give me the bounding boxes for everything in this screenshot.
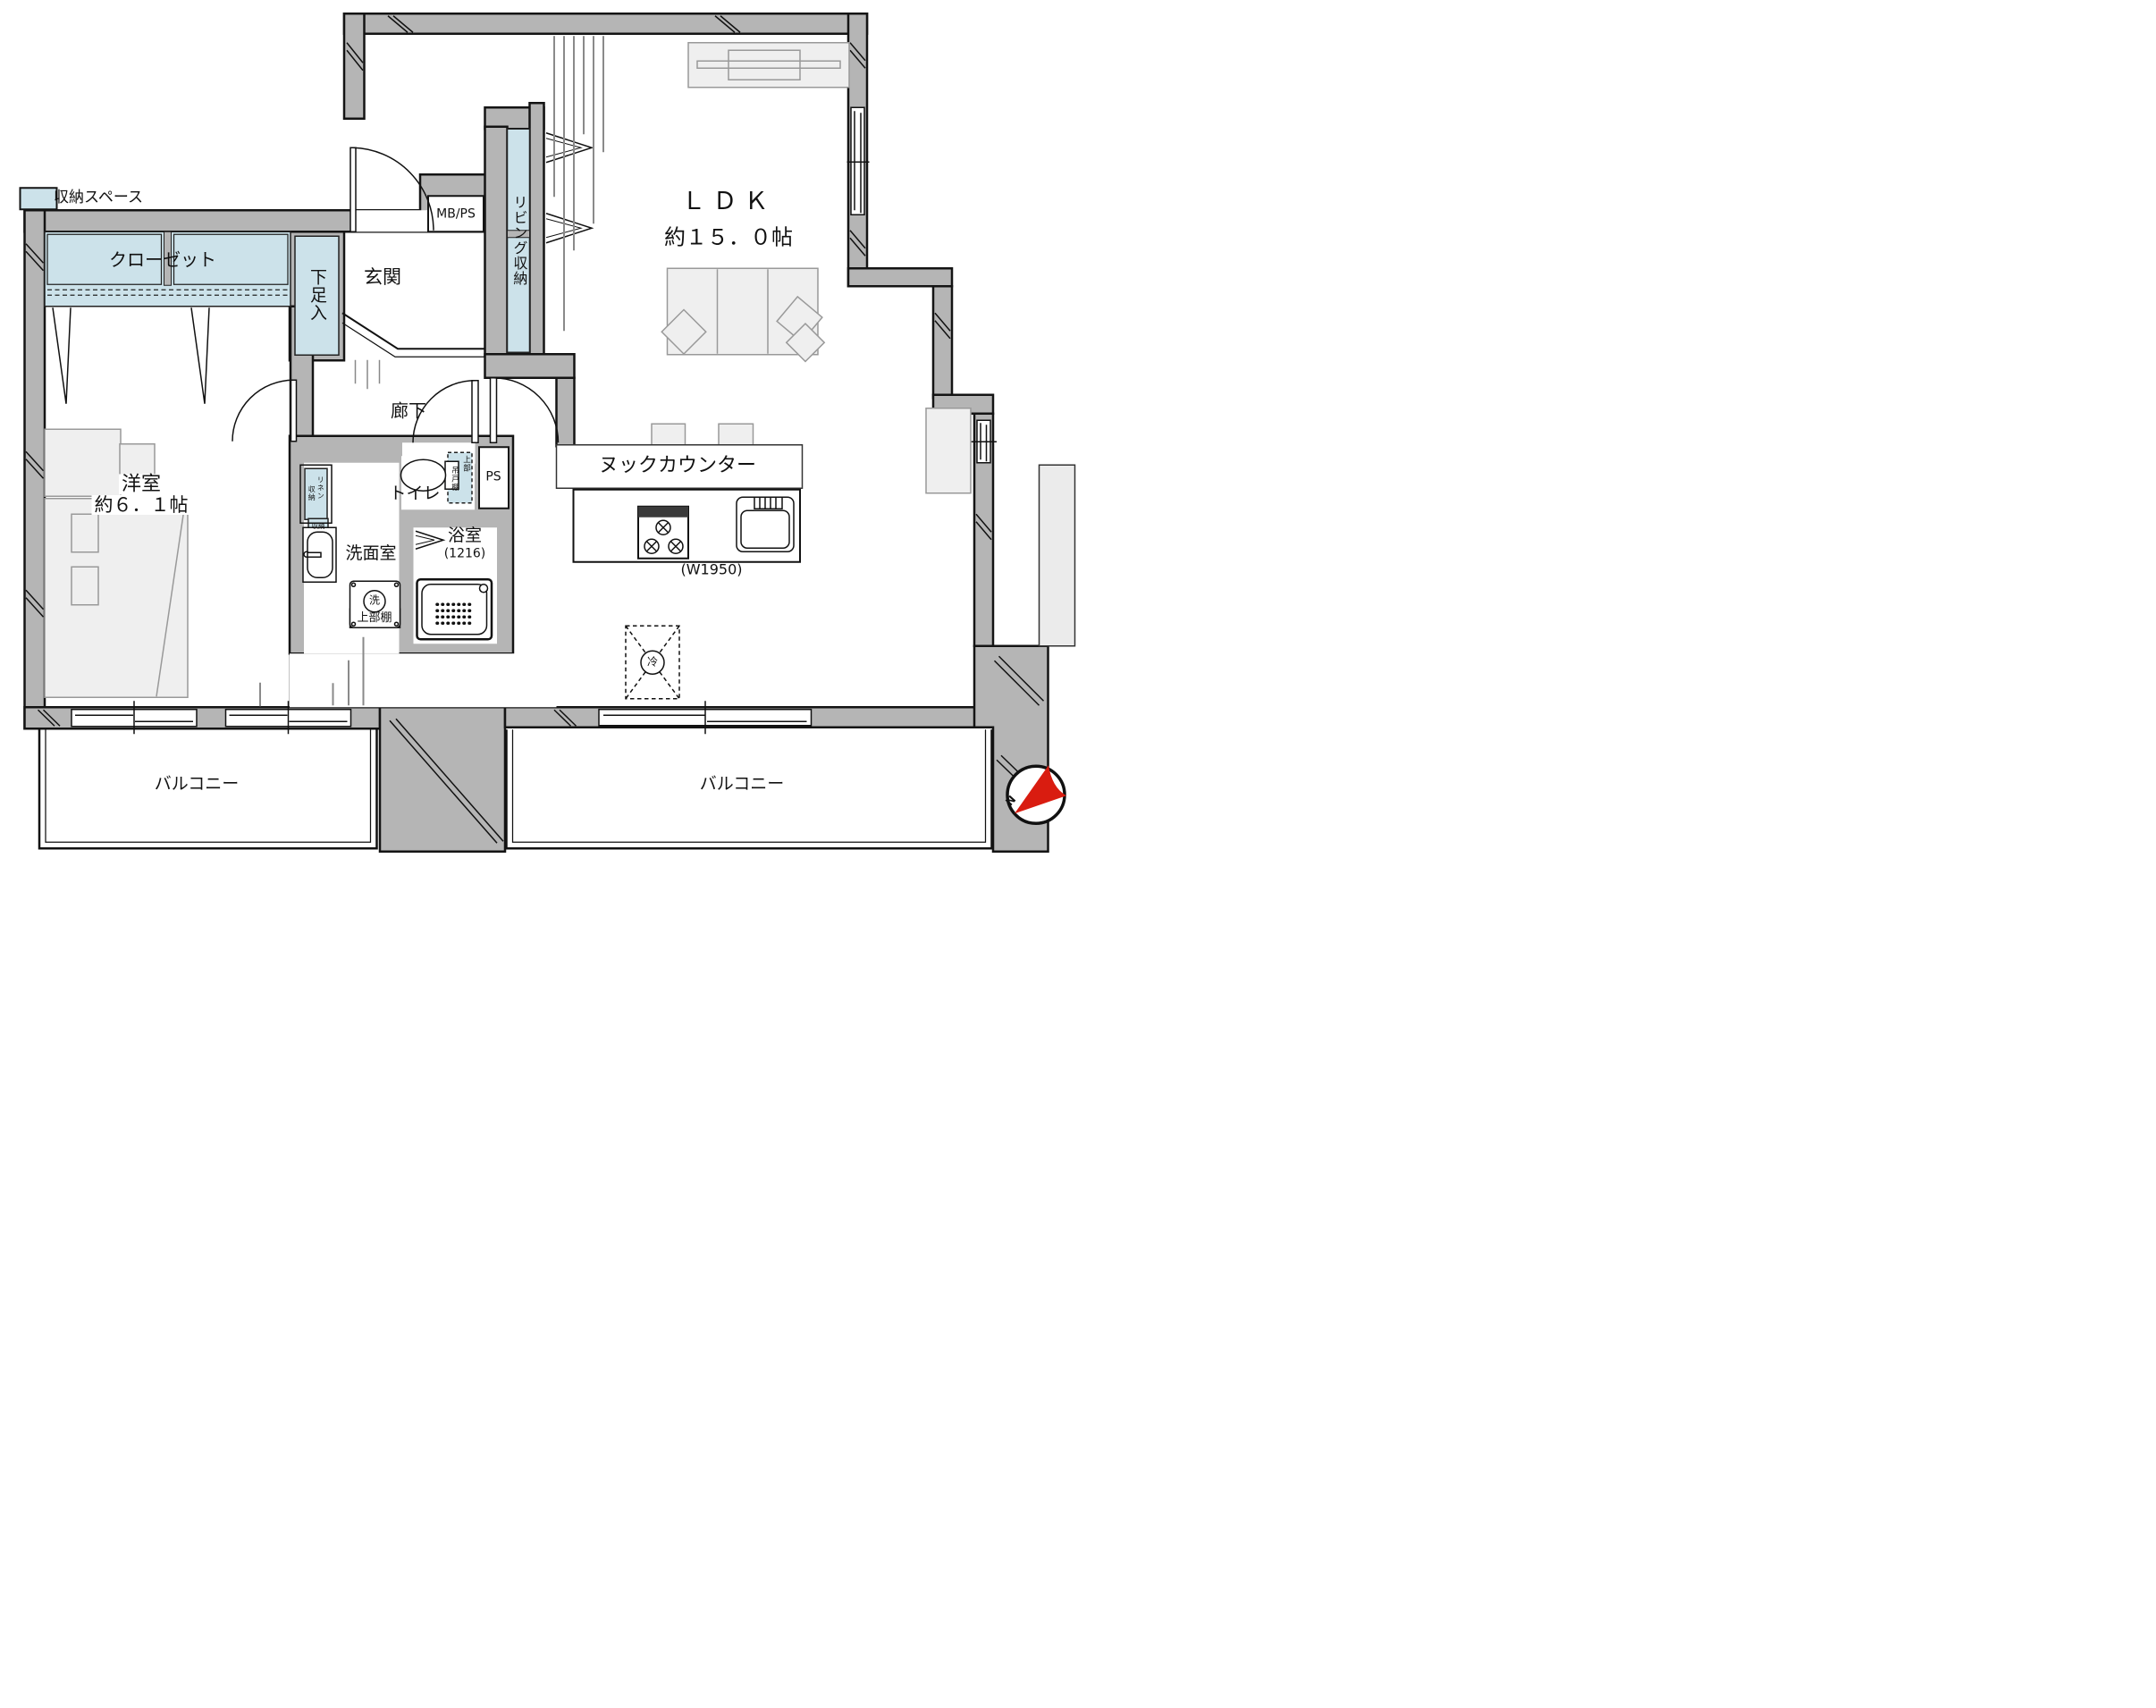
hanging-upper-label: 上部 (462, 456, 470, 473)
western-room-size-label: 約６．１帖 (92, 495, 191, 515)
closet-label: クローゼット (109, 251, 216, 270)
small-storage-label: 収納 (312, 523, 325, 530)
floor-plan-drawing (0, 0, 1078, 854)
western-door-leaf (291, 380, 297, 442)
legend-storage-swatch (21, 188, 57, 209)
ps-label: PS (485, 471, 501, 484)
washroom-label: 洗面室 (345, 545, 396, 563)
legend-label: 収納スペース (54, 190, 143, 206)
western-door-arc (232, 380, 294, 442)
shoe-cabinet-label: 下足入 (307, 268, 325, 322)
linen-label-right: リネン (316, 476, 324, 501)
wall-ldk-left (530, 103, 544, 356)
living-storage-bifold-icon (546, 133, 592, 163)
wall-living-storage-left (485, 127, 508, 356)
fridge-mark-label: 冷 (647, 657, 658, 669)
tv (728, 50, 800, 80)
entrance-step-edge (342, 323, 485, 357)
counter-width-label: (W1950) (680, 563, 742, 578)
washroom-door-leaf (472, 381, 478, 443)
balcony-right-label: バルコニー (700, 776, 785, 794)
western-room-label: 洋室 (119, 474, 164, 494)
entrance-label: 玄関 (364, 267, 401, 287)
wall-right-mid (933, 286, 952, 398)
hanging-cupboard-label: 吊戸棚 (451, 467, 459, 492)
entrance-door-opening (353, 210, 432, 231)
bed-pillow (72, 567, 98, 605)
balcony-left-label: バルコニー (155, 776, 240, 794)
washer-mark-label: 洗 (369, 595, 380, 607)
window-right-upper (851, 107, 864, 215)
neighbor-structure (1040, 465, 1075, 646)
wall-hall-top (485, 354, 575, 378)
entrance-step-edge (342, 313, 485, 349)
stove-grill (638, 507, 688, 517)
toilet-label: トイレ (389, 485, 440, 503)
bed-pillow (72, 514, 98, 552)
bed (45, 499, 188, 698)
upper-shelf-label: 上部棚 (357, 612, 392, 625)
desk (45, 429, 121, 496)
floor-plan: 収納スペース クローゼット 下足入 玄関 MB/PS リビング収納 ＬＤＫ 約１… (0, 0, 1078, 854)
bathtub-drain (480, 585, 488, 593)
closet-bifold-icon (53, 307, 71, 404)
wall-top-step (344, 13, 365, 119)
wall-top-ldk (344, 13, 867, 34)
compass-icon (1007, 765, 1066, 823)
wall-kitchen-stub (557, 378, 575, 447)
nook-counter-label: ヌックカウンター (599, 455, 756, 475)
entrance-door-leaf (350, 147, 356, 231)
toilet-door-arc (493, 378, 559, 443)
ldk-size-label: 約１５．０帖 (664, 226, 793, 248)
ldk-label: ＬＤＫ (682, 189, 776, 215)
bath-size-label: (1216) (444, 548, 486, 561)
lower-floor-strip (290, 653, 557, 707)
wall-right-step1 (848, 268, 952, 286)
linen-label-left: 収納 (307, 485, 315, 501)
washbasin-handle (307, 552, 321, 557)
living-storage-bifold-icon (546, 214, 592, 243)
side-cabinet (926, 408, 971, 493)
bath-label: 浴室 (448, 527, 482, 545)
living-storage-label: リビング収納 (511, 195, 526, 286)
mbps-label: MB/PS (436, 208, 476, 222)
closet-bifold-icon (191, 307, 209, 404)
hallway-label: 廊下 (391, 402, 426, 421)
toilet-door-leaf (491, 378, 497, 443)
